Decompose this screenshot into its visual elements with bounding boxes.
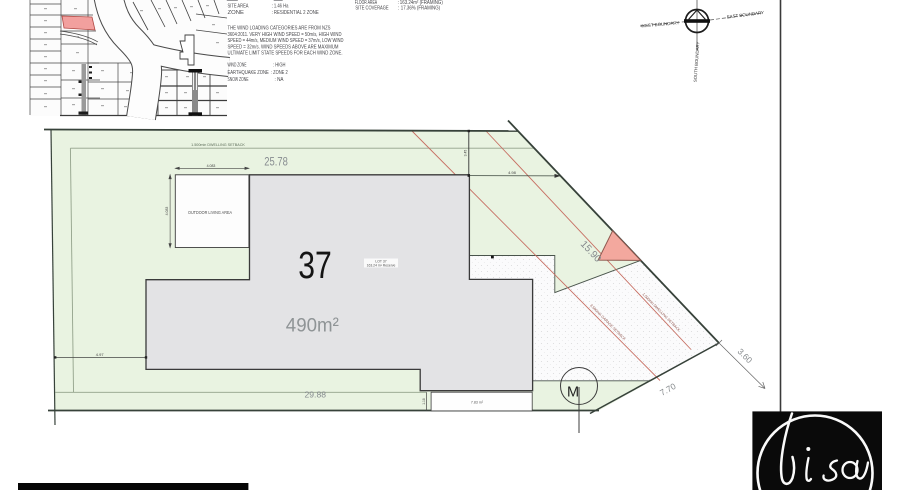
svg-text:SNOW ZONE: SNOW ZONE [228, 77, 249, 83]
svg-text:RESIDENTIAL 2 ZONE: RESIDENTIAL 2 ZONE [274, 10, 319, 16]
svg-text:ULTIMATE LIMIT STATE SPEEDS FO: ULTIMATE LIMIT STATE SPEEDS FOR EACH WIN… [228, 51, 343, 57]
svg-text:: ZONE 2: : ZONE 2 [271, 70, 288, 76]
svg-text::: : [272, 4, 273, 10]
svg-text:: NA: : NA [275, 77, 284, 83]
svg-text:SPEED = 44m/s, MEDIUM WIND SPE: SPEED = 44m/s, MEDIUM WIND SPEED = 37m/s… [228, 38, 344, 44]
svg-text:1.18: 1.18 [422, 398, 426, 405]
svg-text:1.46 Ha: 1.46 Ha [274, 4, 289, 10]
svg-text:M: M [567, 385, 579, 401]
svg-text:WIND ZONE: WIND ZONE [228, 63, 247, 69]
svg-text:4.083: 4.083 [207, 164, 216, 168]
svg-text:4.98: 4.98 [508, 170, 517, 175]
svg-text:4.97: 4.97 [96, 352, 105, 357]
svg-text:17.36% (FRAMING): 17.36% (FRAMING) [401, 6, 441, 12]
svg-text:29.88: 29.88 [305, 389, 327, 399]
svg-text::: : [272, 10, 273, 16]
svg-text:163.24 m² Reserve: 163.24 m² Reserve [367, 264, 396, 268]
svg-text:37: 37 [298, 245, 332, 287]
svg-text:3.45: 3.45 [464, 150, 468, 157]
svg-text:EARTHQUAKE ZONE: EARTHQUAKE ZONE [228, 70, 270, 76]
svg-text:490m²: 490m² [286, 315, 339, 337]
svg-text:4.083: 4.083 [165, 207, 169, 216]
svg-text:3604:2011. VERY HIGH WIND SPEE: 3604:2011. VERY HIGH WIND SPEED = 50m/s,… [228, 32, 342, 38]
svg-text:: HIGH: : HIGH [273, 63, 286, 69]
svg-text:OUTDOOR LIVING AREA: OUTDOOR LIVING AREA [188, 210, 232, 215]
svg-text:1.500min DWELLING SETBACK: 1.500min DWELLING SETBACK [191, 143, 245, 147]
svg-text:25.78: 25.78 [264, 154, 288, 168]
svg-text::: : [398, 6, 399, 12]
svg-text:THE WIND LOADING CATEGORIES AR: THE WIND LOADING CATEGORIES ARE FROM NZS [228, 25, 331, 31]
svg-text:SITE AREA: SITE AREA [228, 4, 249, 10]
svg-text:ZONE: ZONE [228, 10, 245, 16]
svg-text:SITE COVERAGE: SITE COVERAGE [355, 6, 389, 12]
svg-text:SPEED = 32m/s. WIND SPEEDS ABO: SPEED = 32m/s. WIND SPEEDS ABOVE ARE MAX… [228, 44, 339, 50]
svg-text:7.83 m²: 7.83 m² [471, 401, 484, 405]
